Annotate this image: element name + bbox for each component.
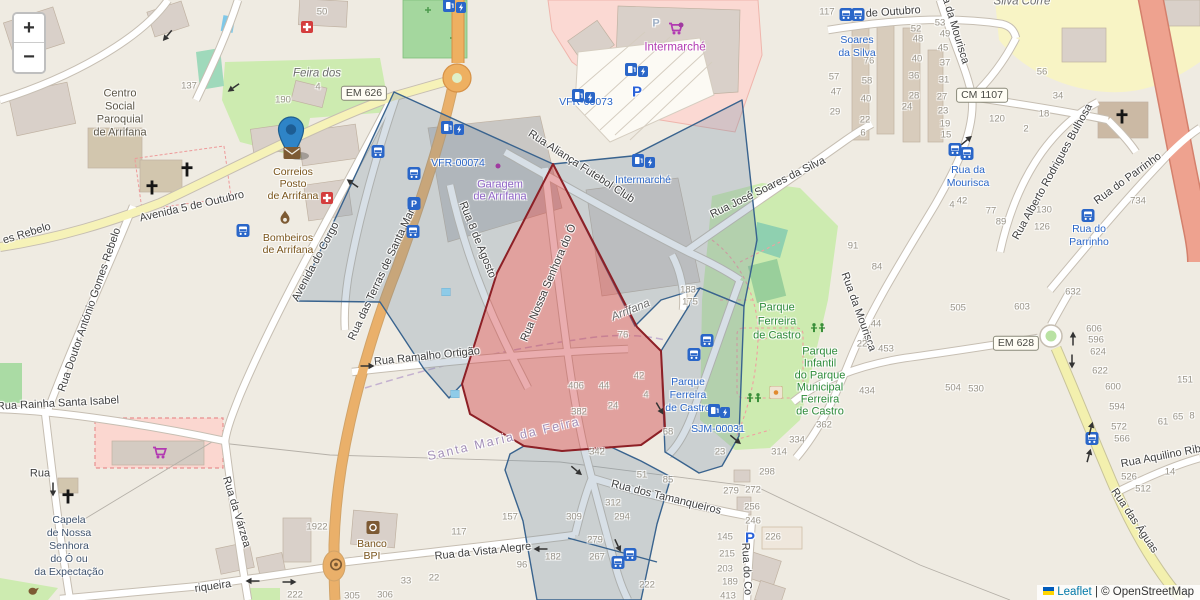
openstreetmap-link[interactable]: © OpenStreetMap bbox=[1101, 586, 1194, 598]
map-canvas[interactable]: Avenida 5 de Outubroes RebeloRua Doutor … bbox=[0, 0, 1200, 600]
map-tiles bbox=[0, 0, 1200, 600]
ukraine-flag-icon bbox=[1043, 587, 1054, 595]
attribution-separator: | bbox=[1092, 586, 1101, 598]
zoom-in-button[interactable]: + bbox=[14, 14, 44, 43]
leaflet-link[interactable]: Leaflet bbox=[1057, 586, 1092, 598]
zoom-control: + − bbox=[12, 12, 46, 74]
zoom-out-button[interactable]: − bbox=[14, 43, 44, 72]
attribution-bar: Leaflet | © OpenStreetMap bbox=[1037, 585, 1200, 600]
